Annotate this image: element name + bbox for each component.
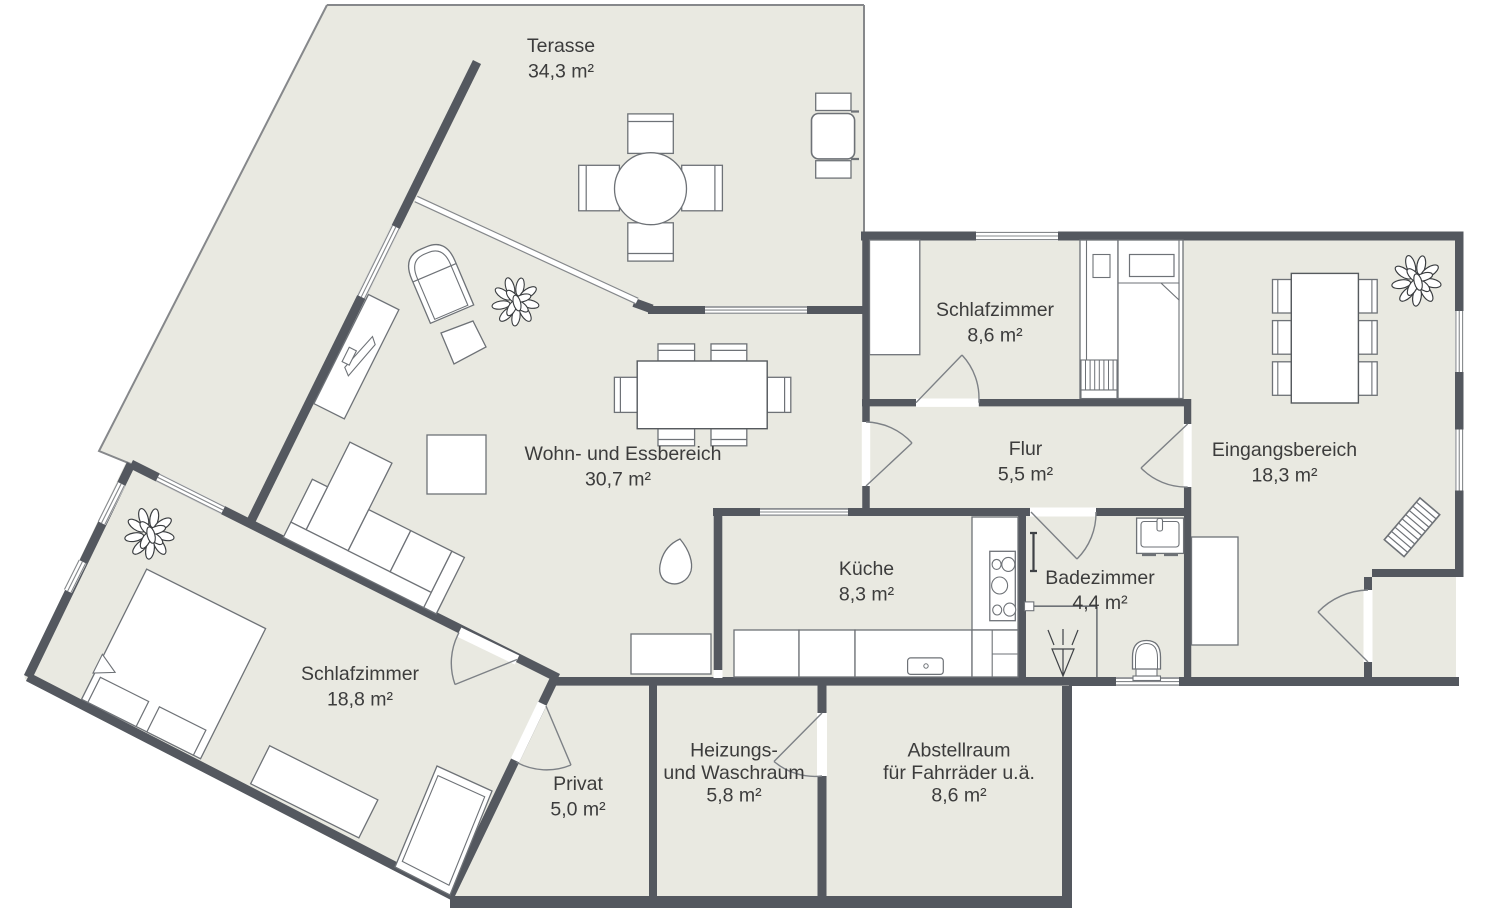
svg-text:Schlafzimmer: Schlafzimmer	[301, 663, 420, 685]
svg-text:8,6 m²: 8,6 m²	[967, 325, 1023, 347]
svg-text:Flur: Flur	[1009, 438, 1043, 460]
svg-text:18,3 m²: 18,3 m²	[1251, 465, 1318, 487]
svg-text:8,3 m²: 8,3 m²	[839, 584, 895, 606]
svg-text:Badezimmer: Badezimmer	[1045, 567, 1155, 589]
svg-text:5,5 m²: 5,5 m²	[998, 464, 1054, 486]
svg-text:Abstellraum: Abstellraum	[908, 740, 1011, 762]
svg-text:Heizungs-: Heizungs-	[690, 740, 778, 762]
svg-text:4,4 m²: 4,4 m²	[1072, 592, 1128, 614]
svg-text:Eingangsbereich: Eingangsbereich	[1212, 439, 1357, 461]
svg-text:Privat: Privat	[553, 773, 603, 795]
svg-text:Terasse: Terasse	[527, 35, 595, 57]
svg-text:und Waschraum: und Waschraum	[663, 762, 804, 784]
svg-text:18,8 m²: 18,8 m²	[327, 689, 394, 711]
svg-text:für Fahrräder u.ä.: für Fahrräder u.ä.	[883, 762, 1035, 784]
svg-text:8,6 m²: 8,6 m²	[931, 785, 987, 807]
svg-text:34,3 m²: 34,3 m²	[528, 61, 595, 83]
svg-text:Küche: Küche	[839, 558, 894, 580]
svg-text:30,7 m²: 30,7 m²	[585, 469, 652, 491]
svg-text:Wohn- und Essbereich: Wohn- und Essbereich	[525, 443, 722, 465]
svg-text:5,8 m²: 5,8 m²	[706, 785, 762, 807]
svg-text:Schlafzimmer: Schlafzimmer	[936, 299, 1055, 321]
svg-text:5,0 m²: 5,0 m²	[550, 799, 606, 821]
